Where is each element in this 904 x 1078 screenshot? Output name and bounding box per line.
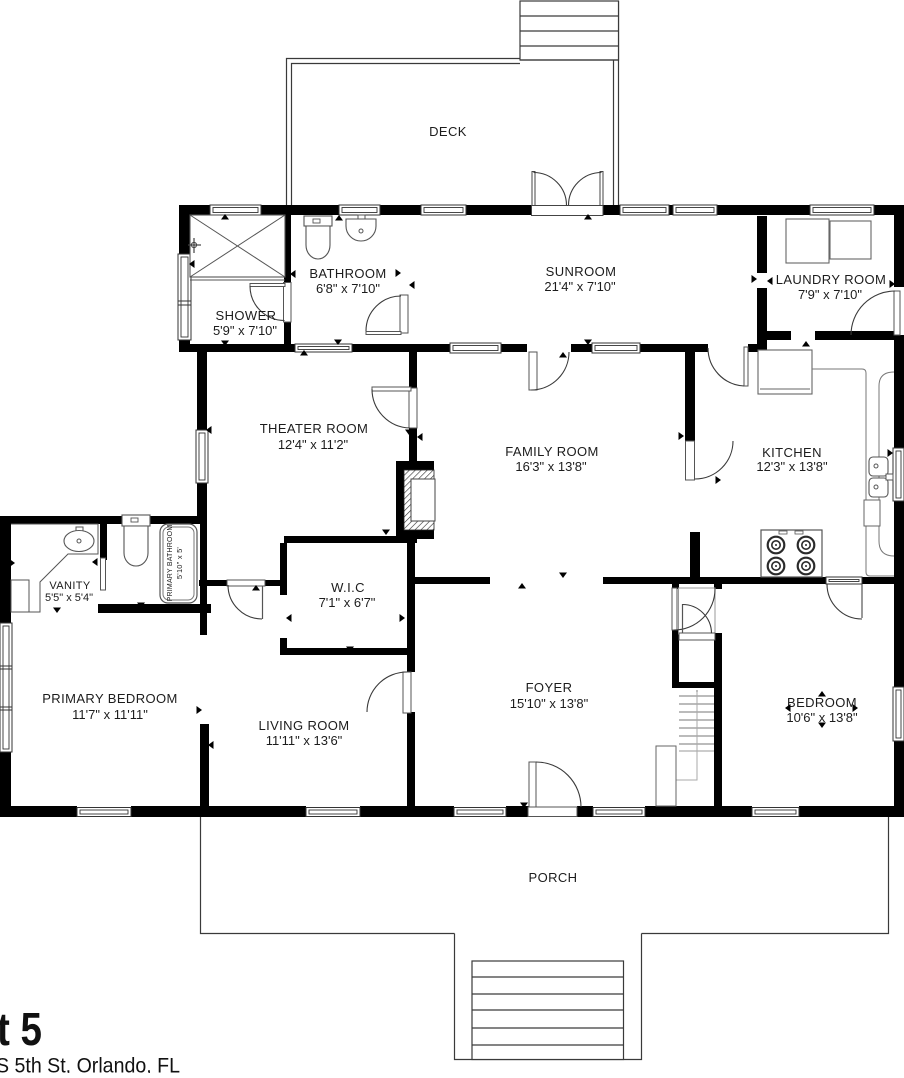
svg-text:LIVING ROOM: LIVING ROOM: [258, 718, 349, 733]
svg-text:12'3" x 13'8": 12'3" x 13'8": [756, 459, 828, 474]
svg-text:BATHROOM: BATHROOM: [309, 266, 386, 281]
svg-text:6'8" x 7'10": 6'8" x 7'10": [316, 281, 380, 296]
svg-text:W.I.C: W.I.C: [331, 580, 365, 595]
svg-text:PRIMARY BEDROOM: PRIMARY BEDROOM: [42, 691, 178, 706]
svg-text:t 5: t 5: [0, 1003, 42, 1055]
svg-text:5'10" x 5': 5'10" x 5': [175, 547, 184, 579]
svg-text:PRIMARY BATHROOM: PRIMARY BATHROOM: [167, 525, 174, 602]
svg-text:KITCHEN: KITCHEN: [762, 445, 822, 460]
svg-text:SUNROOM: SUNROOM: [546, 264, 617, 279]
svg-text:DECK: DECK: [429, 124, 467, 139]
svg-text:BEDROOM: BEDROOM: [787, 695, 857, 710]
svg-text:S 5th St, Orlando, FL: S 5th St, Orlando, FL: [0, 1055, 180, 1074]
svg-text:LAUNDRY ROOM: LAUNDRY ROOM: [776, 272, 887, 287]
svg-text:SHOWER: SHOWER: [216, 308, 277, 323]
svg-text:15'10" x 13'8": 15'10" x 13'8": [510, 696, 589, 711]
svg-text:THEATER ROOM: THEATER ROOM: [260, 421, 369, 436]
svg-text:VANITY: VANITY: [49, 580, 91, 592]
svg-text:7'1" x 6'7": 7'1" x 6'7": [319, 595, 376, 610]
svg-text:PORCH: PORCH: [529, 870, 578, 885]
svg-text:11'11" x 13'6": 11'11" x 13'6": [266, 733, 343, 748]
svg-text:5'5" x 5'4": 5'5" x 5'4": [45, 592, 93, 604]
svg-text:FAMILY ROOM: FAMILY ROOM: [505, 444, 599, 459]
svg-text:7'9" x 7'10": 7'9" x 7'10": [798, 287, 862, 302]
svg-text:11'7" x 11'11": 11'7" x 11'11": [72, 707, 148, 722]
svg-text:12'4" x 11'2": 12'4" x 11'2": [278, 437, 349, 452]
svg-text:21'4" x 7'10": 21'4" x 7'10": [544, 279, 616, 294]
svg-text:5'9" x 7'10": 5'9" x 7'10": [213, 323, 277, 338]
svg-text:16'3" x 13'8": 16'3" x 13'8": [515, 459, 587, 474]
svg-text:FOYER: FOYER: [526, 680, 573, 695]
